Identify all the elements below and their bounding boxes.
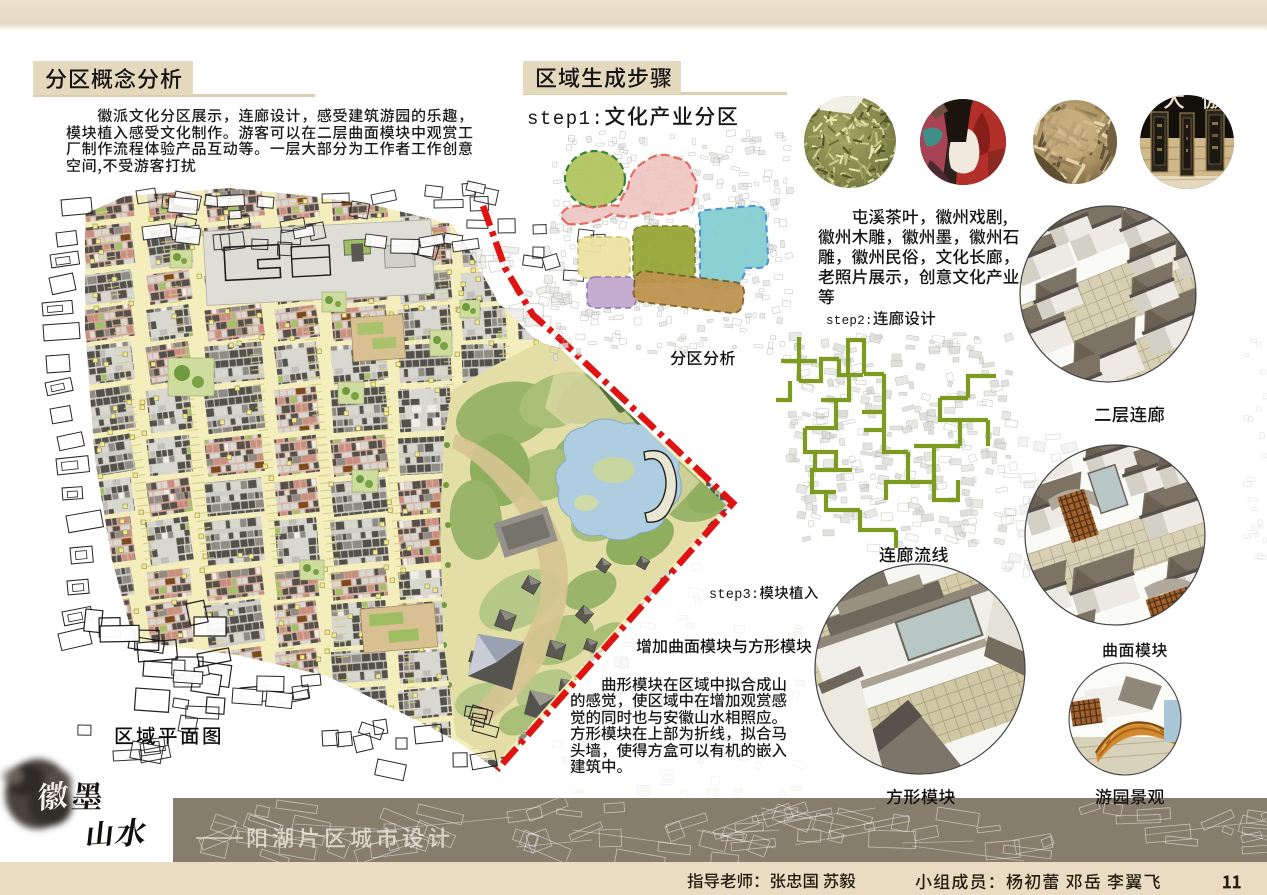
svg-text:大傲: 大傲	[1163, 82, 1239, 114]
